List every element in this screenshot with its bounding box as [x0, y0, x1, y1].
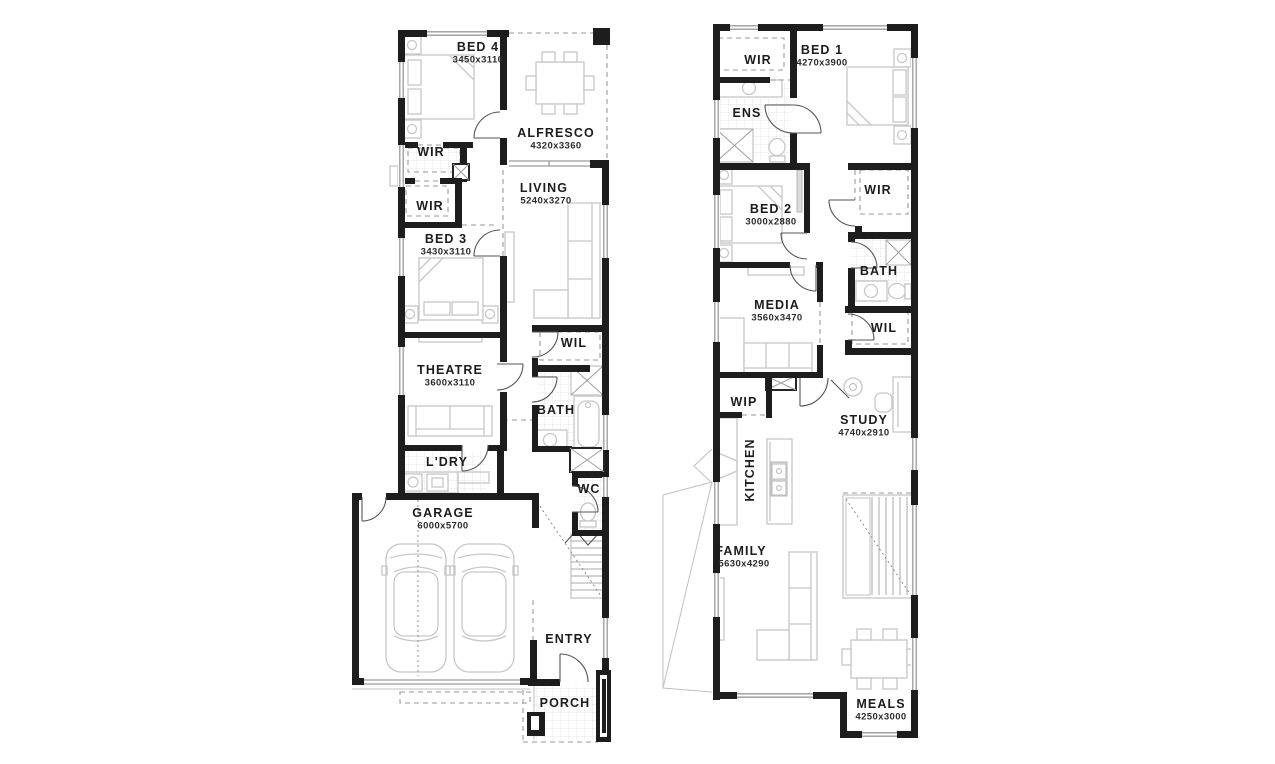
sofa-icon — [505, 203, 600, 318]
room-dims-theatre: 3600x3110 — [425, 378, 476, 388]
room-label-family: FAMILY — [715, 545, 766, 558]
room-label-wir-1: WIR — [417, 146, 445, 159]
room-label-ens: ENS — [732, 107, 761, 120]
room-label-bed1: BED 1 — [801, 44, 843, 57]
bed-icon — [402, 258, 498, 323]
bed-icon — [847, 49, 911, 144]
room-label-garage: GARAGE — [412, 507, 473, 520]
room-dims-living: 5240x3270 — [520, 196, 571, 206]
room-label-alfresco: ALFRESCO — [517, 127, 595, 140]
room-label-bath-upper: BATH — [860, 265, 898, 278]
room-dims-meals: 4250x3000 — [855, 712, 906, 722]
room-dims-bed4: 3450x3110 — [453, 55, 504, 65]
room-dims-garage: 6000x5700 — [417, 521, 468, 531]
bathtub-icon — [574, 396, 603, 452]
room-label-wil-upper: WIL — [871, 322, 897, 335]
room-label-kitchen: KITCHEN — [744, 438, 757, 501]
room-label-theatre: THEATRE — [417, 364, 483, 377]
outdoor-table-icon — [526, 52, 594, 114]
porch-pier — [527, 712, 545, 736]
dining-table-icon — [842, 629, 916, 689]
floorplan-canvas: BED 4 3450x3110 ALFRESCO 4320x3360 WIR W… — [0, 0, 1275, 764]
stairs-icon — [843, 493, 913, 598]
room-dims-family: 5630x4290 — [718, 559, 769, 569]
first-floor-plan — [663, 24, 918, 738]
room-label-entry: ENTRY — [545, 633, 592, 646]
room-dims-bed3: 3430x3110 — [421, 247, 472, 257]
toilet-icon — [580, 503, 596, 527]
room-dims-study: 4740x2910 — [838, 428, 889, 438]
room-label-bed2: BED 2 — [750, 203, 792, 216]
room-dims-media: 3560x3470 — [751, 313, 802, 323]
room-label-wir-right: WIR — [864, 184, 892, 197]
room-label-living: LIVING — [520, 182, 568, 195]
room-label-bath: BATH — [537, 404, 575, 417]
room-label-ldry: L'DRY — [426, 456, 468, 469]
room-label-porch: PORCH — [540, 697, 591, 710]
room-label-wir-2: WIR — [416, 200, 444, 213]
room-dims-alfresco: 4320x3360 — [530, 141, 581, 151]
room-label-wip: WIP — [731, 396, 758, 409]
room-label-study: STUDY — [840, 414, 888, 427]
room-label-wc: WC — [577, 483, 600, 496]
stairs-icon — [565, 531, 603, 598]
room-label-wir-top: WIR — [744, 54, 772, 67]
floorplan-graphics — [0, 0, 1275, 764]
room-label-bed3: BED 3 — [425, 233, 467, 246]
room-label-wil: WIL — [561, 337, 587, 350]
room-dims-bed1: 4270x3900 — [796, 58, 847, 68]
room-label-meals: MEALS — [856, 698, 905, 711]
room-label-bed4: BED 4 — [457, 41, 499, 54]
roof-outline — [663, 449, 712, 692]
room-dims-bed2: 3000x2880 — [745, 217, 796, 227]
room-label-media: MEDIA — [754, 299, 800, 312]
